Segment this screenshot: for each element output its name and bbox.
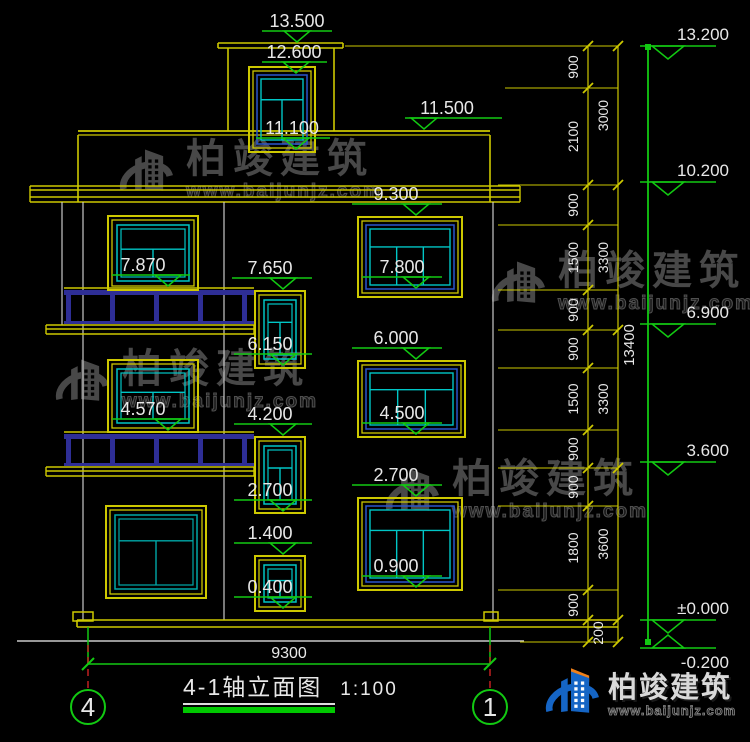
elevation-label: 2.700 — [247, 480, 292, 500]
brand-logo-text: 柏竣建筑 www.baijunjz.com — [608, 673, 736, 718]
balcony-post — [198, 439, 203, 464]
axis-number: 1 — [483, 692, 497, 722]
elevation-marker-triangle — [403, 204, 429, 215]
title-block: 4-1轴立面图1:100 — [183, 668, 398, 713]
elevation-marker-triangle — [284, 31, 310, 42]
elevation-marker-triangle — [652, 324, 684, 337]
elevation-label: 11.100 — [265, 118, 319, 138]
dim-label: 2100 — [565, 121, 581, 152]
elevation-label: 7.870 — [120, 255, 165, 275]
elevation-marker-triangle — [652, 635, 684, 648]
dim-label: 900 — [565, 298, 581, 322]
dim-label: 900 — [565, 337, 581, 361]
balcony-post — [154, 295, 159, 322]
elevation-label: 4.200 — [247, 404, 292, 424]
dim-label: 3600 — [595, 528, 611, 559]
balcony-post — [66, 295, 71, 322]
title-underline — [183, 703, 335, 705]
drawing-title: 4-1轴立面图 — [183, 674, 322, 700]
title-row: 4-1轴立面图1:100 — [183, 668, 398, 702]
elevation-label: 7.800 — [379, 257, 424, 277]
brand-url: www.baijunjz.com — [608, 703, 736, 718]
drawing-scale: 1:100 — [340, 679, 398, 700]
elevation-label: 9.300 — [373, 184, 418, 204]
balcony-post — [242, 439, 247, 464]
elevation-drawing-svg: 9002100900150090090015009009001800900300… — [0, 0, 750, 742]
elevation-label: 4.500 — [379, 403, 424, 423]
balcony-post — [110, 295, 115, 322]
brand-name: 柏竣建筑 — [608, 673, 736, 703]
elevation-label: 11.500 — [420, 98, 474, 118]
brand-logo-icon — [538, 660, 604, 731]
dim-label: 900 — [565, 593, 581, 617]
dim-label: 1500 — [565, 383, 581, 414]
balcony-rail-bottom — [64, 321, 254, 324]
cad-elevation-drawing: 柏竣建筑www.baijunjz.com柏竣建筑www.baijunjz.com… — [0, 0, 750, 742]
dim-label: 3000 — [595, 100, 611, 131]
elevation-label: 13.500 — [269, 11, 324, 31]
elevation-marker-triangle — [403, 277, 429, 288]
elevation-label: 0.900 — [373, 556, 418, 576]
bottom-dim-label: 9300 — [271, 645, 307, 662]
balcony-rail-bar — [64, 434, 254, 439]
elevation-label: 4.570 — [120, 399, 165, 419]
elevation-marker-triangle — [403, 348, 429, 359]
dim-label: 900 — [565, 475, 581, 499]
brand-logo: 柏竣建筑 www.baijunjz.com — [538, 660, 736, 731]
balcony-post — [66, 439, 71, 464]
dim-label: 1500 — [565, 242, 581, 273]
balcony-post — [198, 295, 203, 322]
datum-dot — [645, 44, 651, 50]
dim-label: 1800 — [565, 532, 581, 563]
dim-label: 200 — [590, 621, 606, 645]
elevation-label: 7.650 — [247, 258, 292, 278]
dim-label: 3300 — [595, 242, 611, 273]
elevation-label: 10.200 — [677, 161, 729, 180]
elevation-marker-triangle — [652, 620, 684, 633]
elevation-marker-triangle — [652, 46, 684, 59]
brand-glyph-icon — [538, 660, 604, 726]
elevation-label: 0.400 — [247, 577, 292, 597]
balcony-post — [110, 439, 115, 464]
dim-label: 900 — [565, 437, 581, 461]
elevation-label: 6.150 — [247, 334, 292, 354]
elevation-marker-triangle — [270, 543, 296, 554]
axis-number: 4 — [81, 692, 95, 722]
dim-label: 900 — [565, 193, 581, 217]
dim-label: 3300 — [595, 383, 611, 414]
elevation-label: 13.200 — [677, 25, 729, 44]
total-height-dim: 13400 — [621, 324, 638, 366]
elevation-label: 6.900 — [686, 303, 729, 322]
elevation-label: 12.600 — [266, 42, 321, 62]
balcony-post — [242, 295, 247, 322]
elevation-marker-triangle — [270, 424, 296, 435]
elevation-marker-triangle — [652, 462, 684, 475]
elevation-marker-triangle — [411, 118, 437, 129]
balcony-rail-bottom — [64, 463, 254, 466]
elevation-label: 6.000 — [373, 328, 418, 348]
elevation-marker-triangle — [270, 278, 296, 289]
title-underline-green — [183, 707, 335, 713]
datum-dot — [645, 639, 651, 645]
dim-label: 900 — [565, 55, 581, 79]
elevation-label: 3.600 — [686, 441, 729, 460]
elevation-marker-triangle — [652, 182, 684, 195]
elevation-marker-triangle — [403, 485, 429, 496]
elevation-label: 2.700 — [373, 465, 418, 485]
balcony-post — [154, 439, 159, 464]
elevation-label: 1.400 — [247, 523, 292, 543]
elevation-label: ±0.000 — [677, 599, 729, 618]
